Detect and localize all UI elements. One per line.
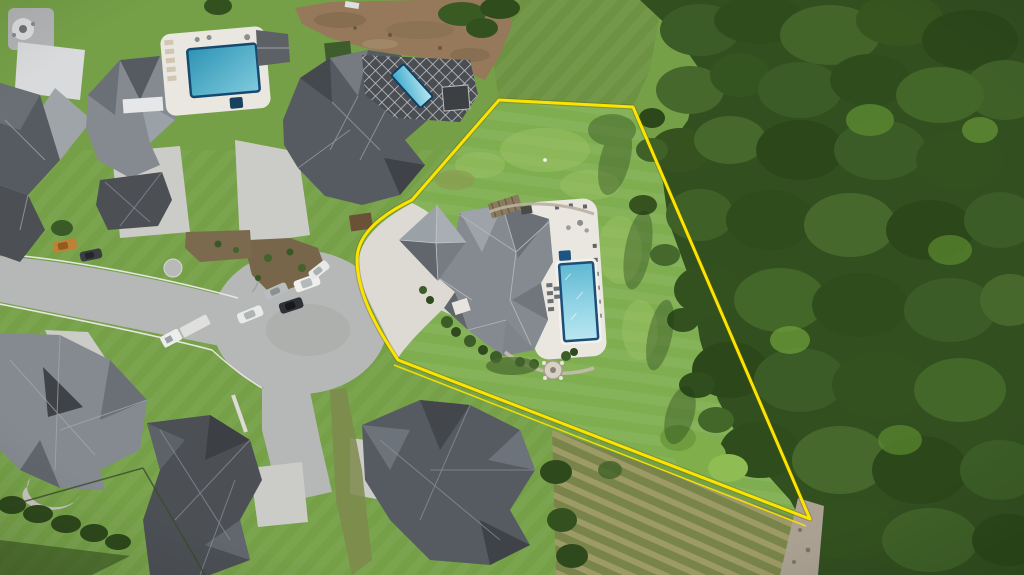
vignette xyxy=(0,0,1024,575)
aerial-photo xyxy=(0,0,1024,575)
aerial-photo-canvas xyxy=(0,0,1024,575)
